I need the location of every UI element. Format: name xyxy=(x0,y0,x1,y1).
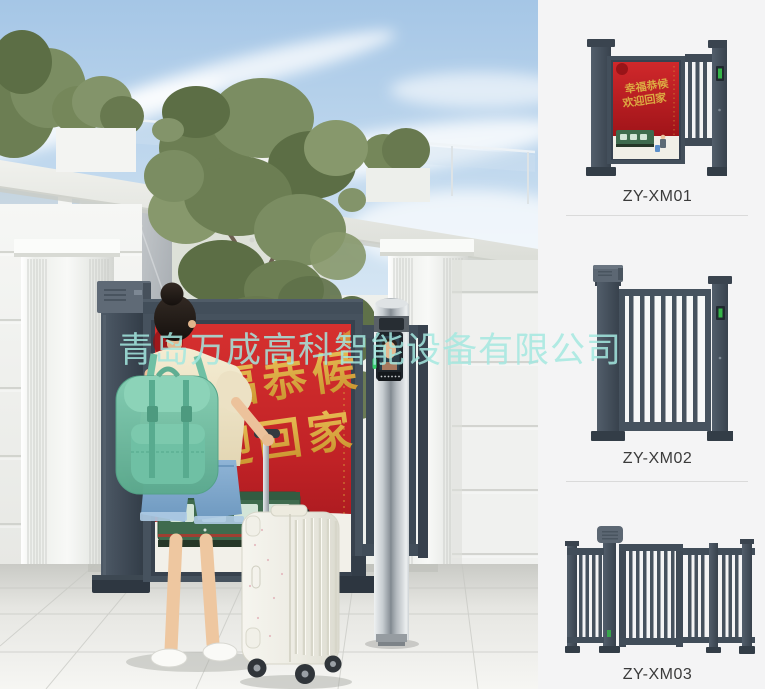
backpack xyxy=(116,369,218,494)
scene-photo: 幸福恭候 欢迎回家 xyxy=(0,0,538,689)
product-card-zy-xm01[interactable]: 幸福恭候 欢迎回家 xyxy=(538,0,765,215)
sneaker xyxy=(203,643,237,661)
sneaker xyxy=(151,649,187,667)
product-showcase-image: 幸福恭候 欢迎回家 xyxy=(0,0,765,689)
product-image-zy-xm02[interactable] xyxy=(590,262,733,442)
product-label-zy-xm03: ZY-XM03 xyxy=(544,666,765,684)
face-recognition-device[interactable] xyxy=(373,332,404,381)
product-card-zy-xm02[interactable]: ZY-XM02 xyxy=(538,216,765,481)
gate-motor-box xyxy=(97,281,151,313)
product-label-zy-xm01: ZY-XM01 xyxy=(544,188,765,206)
product-variant-panel: 幸福恭候 欢迎回家 xyxy=(538,0,765,689)
product-label-zy-xm02: ZY-XM02 xyxy=(544,450,765,468)
product-image-zy-xm01[interactable]: 幸福恭候 欢迎回家 xyxy=(575,38,727,178)
status-led xyxy=(373,358,377,369)
hair-bun xyxy=(161,283,184,306)
product-card-zy-xm03[interactable]: ZY-XM03 xyxy=(538,482,765,689)
product-image-zy-xm03[interactable] xyxy=(565,522,755,657)
suitcase xyxy=(240,505,352,689)
hand xyxy=(262,434,274,446)
